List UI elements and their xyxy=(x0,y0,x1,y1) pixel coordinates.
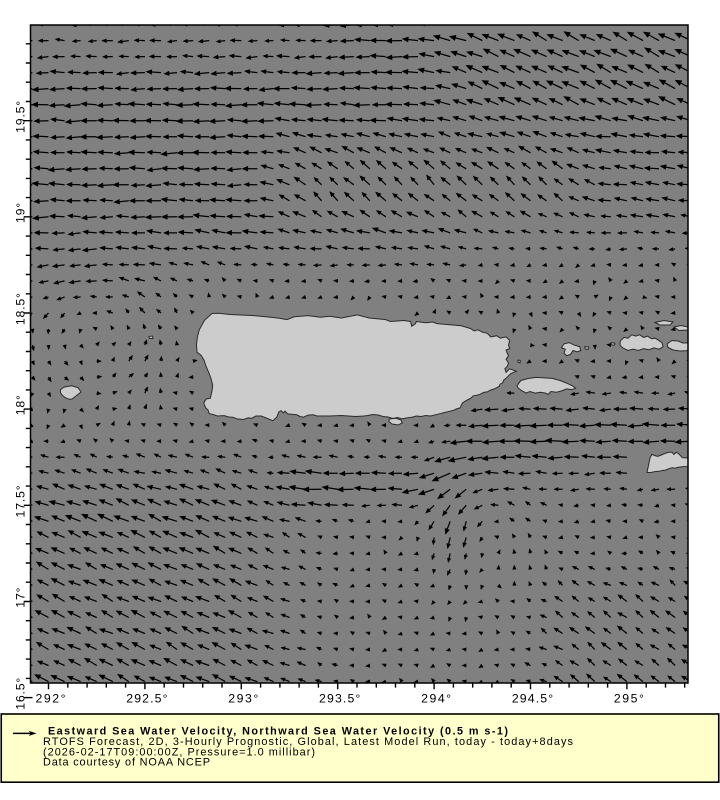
svg-text:18.5°: 18.5° xyxy=(13,292,27,325)
svg-text:18°: 18° xyxy=(13,394,27,415)
svg-text:294°: 294° xyxy=(421,692,451,706)
svg-text:292.5°: 292.5° xyxy=(126,692,167,706)
svg-text:Data courtesy of NOAA NCEP: Data courtesy of NOAA NCEP xyxy=(43,757,210,769)
svg-text:17.5°: 17.5° xyxy=(13,485,27,518)
svg-text:295°: 295° xyxy=(614,692,644,706)
svg-text:17°: 17° xyxy=(13,587,27,608)
svg-text:16.5°: 16.5° xyxy=(13,677,27,710)
svg-text:293.5°: 293.5° xyxy=(319,692,360,706)
svg-text:19.5°: 19.5° xyxy=(13,100,27,133)
svg-text:19°: 19° xyxy=(13,202,27,223)
svg-text:293°: 293° xyxy=(228,692,258,706)
svg-text:292°: 292° xyxy=(36,692,66,706)
svg-text:294.5°: 294.5° xyxy=(512,692,553,706)
